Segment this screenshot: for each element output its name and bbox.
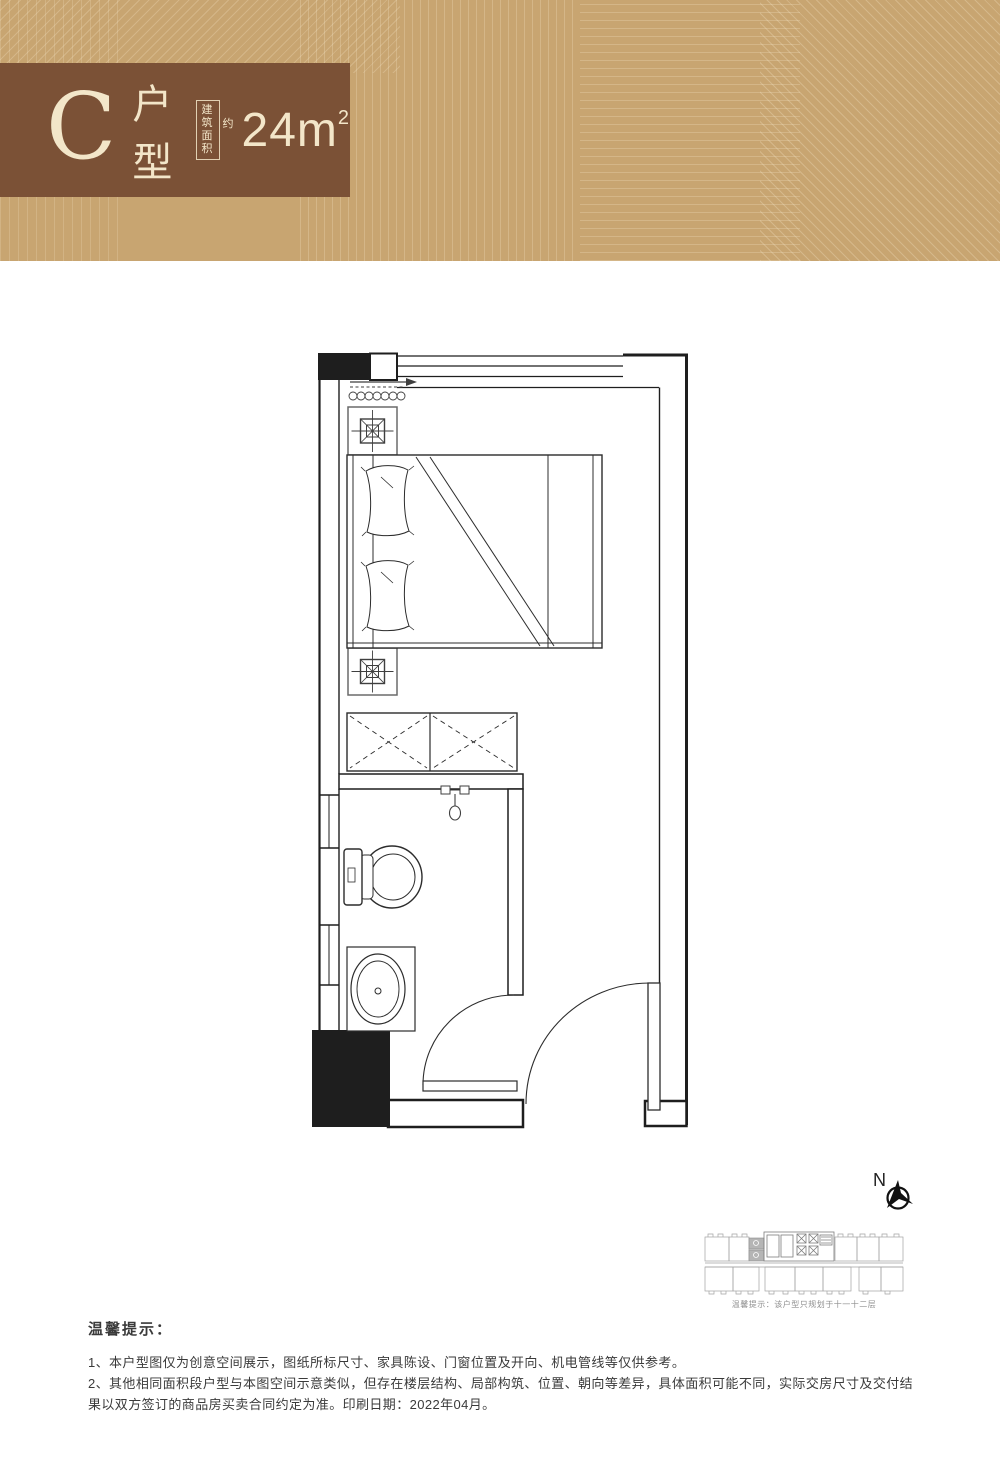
wall-pier-top: [318, 353, 370, 380]
keyplan-core: [764, 1232, 834, 1261]
unit-letter: C: [46, 81, 116, 173]
entry-door: [526, 983, 660, 1110]
header-band: C 户型 建筑 面积 约 24m2: [0, 0, 1000, 261]
footer-note-2: 2、其他相同面积段户型与本图空间示意类似，但存在楼层结构、局部构筑、位置、朝向等…: [88, 1373, 922, 1415]
area-box-line2: 面积: [202, 130, 214, 155]
compass: N: [865, 1162, 917, 1220]
area-approx: 约: [223, 115, 234, 131]
footer-note-1: 1、本户型图仅为创意空间展示，图纸所标尺寸、家具陈设、门窗位置及开向、机电管线等…: [88, 1352, 922, 1373]
unit-type-label: 户型: [132, 72, 183, 188]
bed: [347, 455, 602, 648]
area-box-line1: 建筑: [202, 104, 214, 129]
footer-notes: 温馨提示： 1、本户型图仅为创意空间展示，图纸所标尺寸、家具陈设、门窗位置及开向…: [88, 1318, 922, 1415]
wall-bottom: [388, 1100, 523, 1127]
wardrobe: [347, 713, 517, 771]
area-value: 24m2: [242, 103, 351, 158]
curtain-icon: [349, 378, 417, 400]
area-box: 建筑 面积: [196, 100, 220, 160]
shower-icon: [441, 786, 469, 820]
floor-plan-svg: [300, 340, 700, 1140]
bathroom-door: [423, 995, 517, 1091]
washbasin: [347, 947, 415, 1031]
title-plate: C 户型 建筑 面积 约 24m2: [0, 63, 350, 197]
compass-north-label: N: [873, 1170, 886, 1190]
bath-window-a: [320, 795, 340, 848]
floor-plan: [300, 340, 700, 1140]
wall-pier-bottom: [312, 1030, 390, 1127]
bath-window-b: [320, 925, 340, 985]
window-mullion-box: [370, 354, 397, 381]
nightstand-top: [348, 407, 397, 455]
wall-bath-north: [339, 774, 523, 789]
nightstand-bottom: [348, 648, 397, 695]
compass-icon: N: [865, 1162, 917, 1220]
keyplan-caption: 温馨提示：该户型只规划于十一十二层: [703, 1299, 905, 1310]
keyplan-highlight-unit: [749, 1238, 764, 1261]
pattern-diagonal-right: [760, 0, 1000, 261]
keyplan: [703, 1227, 905, 1297]
area-sup: 2: [338, 107, 350, 129]
wall-bath-east: [508, 789, 523, 995]
footer-heading: 温馨提示：: [88, 1318, 922, 1339]
brochure-page: C 户型 建筑 面积 约 24m2: [0, 0, 1000, 1473]
toilet: [344, 846, 422, 908]
window-band-top: [397, 356, 659, 388]
keyplan-svg: [703, 1227, 905, 1297]
